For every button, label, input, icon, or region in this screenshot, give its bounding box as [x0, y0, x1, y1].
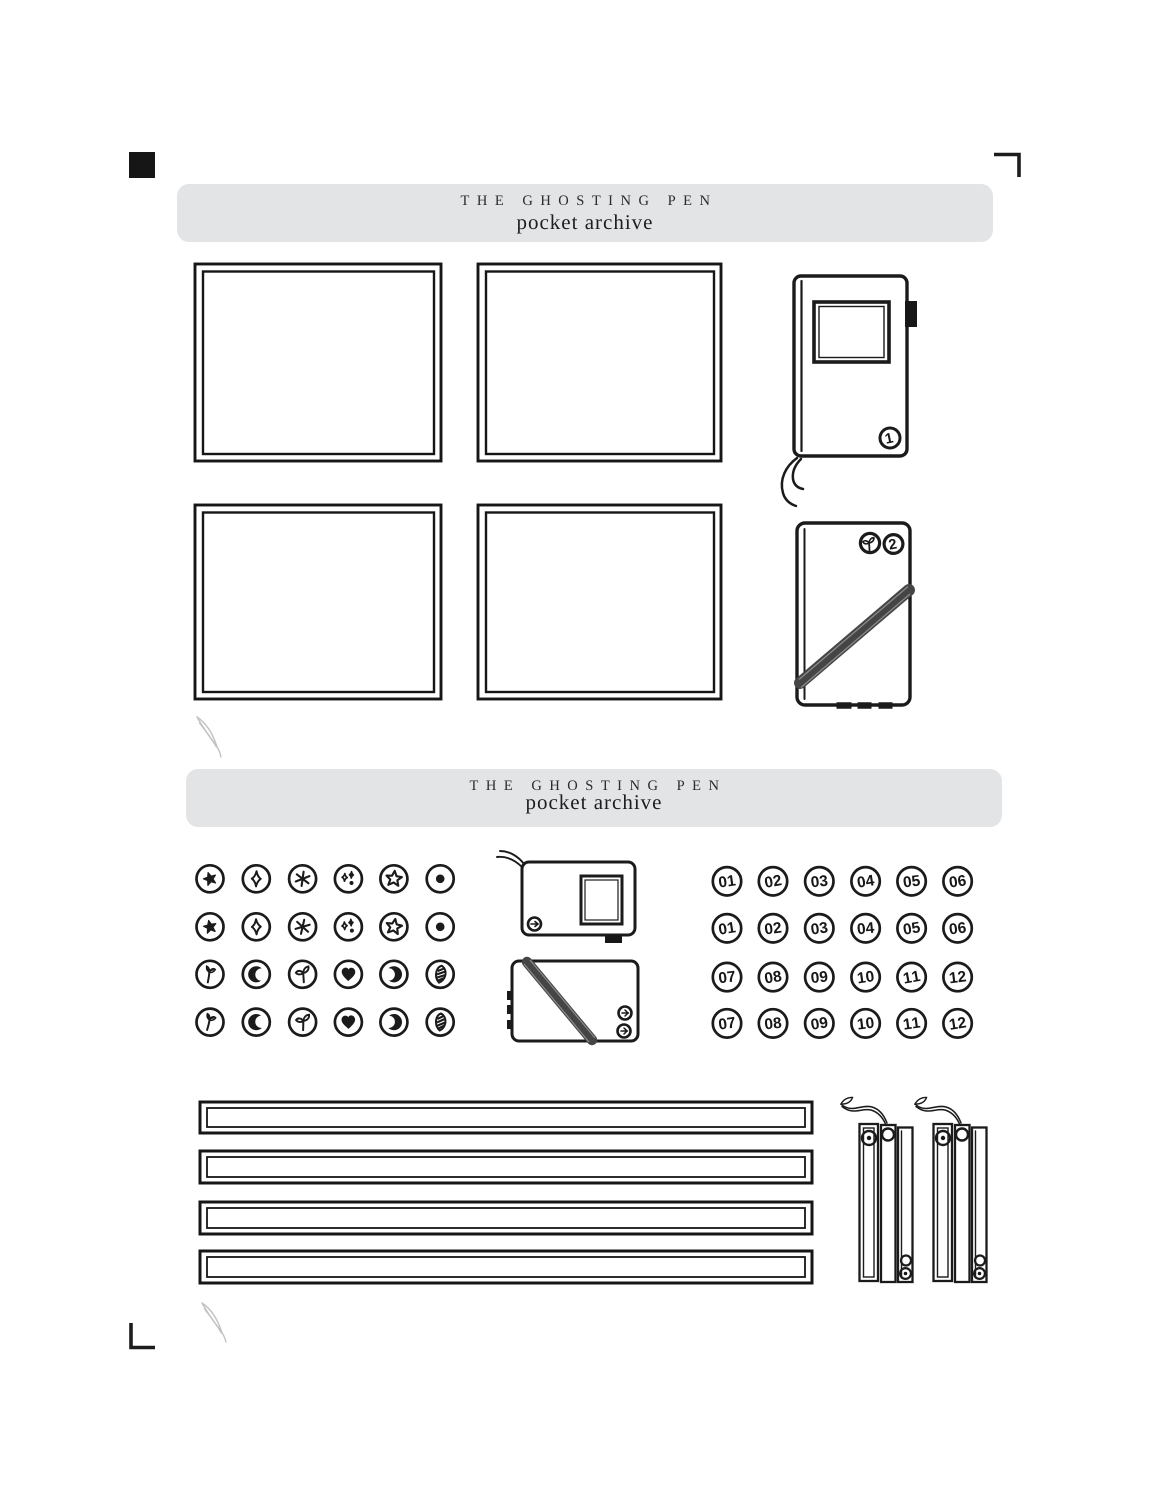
svg-text:pocket archive: pocket archive	[525, 790, 662, 814]
svg-text:pocket archive: pocket archive	[516, 210, 653, 234]
svg-text:THE GHOSTING PEN: THE GHOSTING PEN	[461, 193, 718, 209]
